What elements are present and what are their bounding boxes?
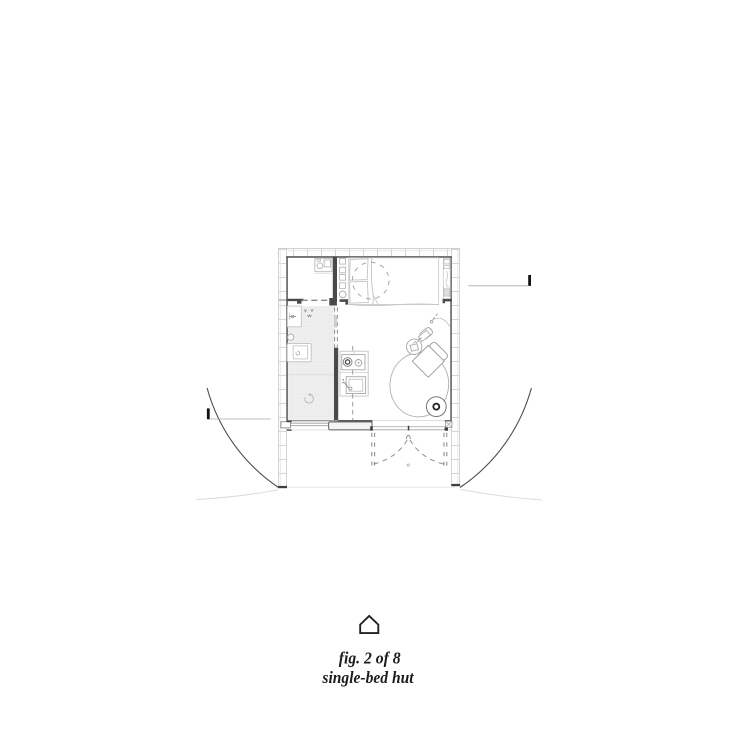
svg-text:fig. 2 of 8: fig. 2 of 8 — [339, 649, 401, 668]
svg-text:single-bed hut: single-bed hut — [321, 668, 414, 687]
